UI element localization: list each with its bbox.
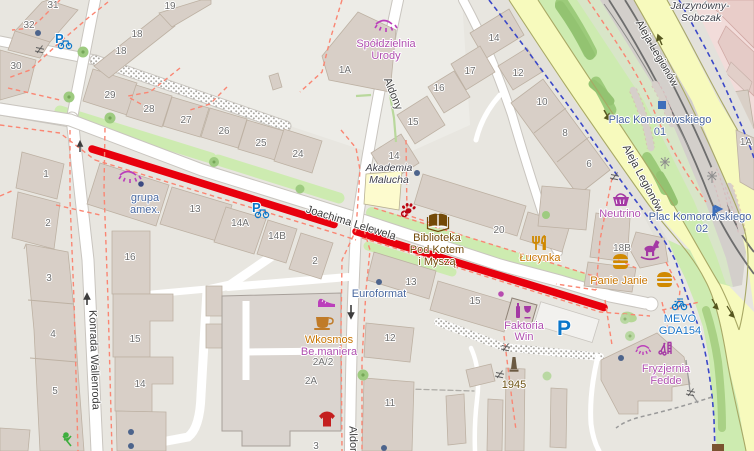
svg-text:Pod Kotem: Pod Kotem	[410, 244, 464, 256]
svg-text:02: 02	[696, 223, 708, 235]
svg-text:5: 5	[52, 386, 58, 397]
svg-text:20: 20	[493, 225, 505, 236]
svg-text:27: 27	[180, 115, 192, 126]
svg-text:Be.maniera: Be.maniera	[301, 346, 358, 358]
svg-text:Neutrino: Neutrino	[599, 208, 641, 220]
svg-text:2A/2: 2A/2	[313, 357, 334, 368]
svg-text:Aldony: Aldony	[346, 426, 359, 451]
svg-text:P: P	[557, 317, 571, 340]
svg-text:Malucha: Malucha	[369, 174, 409, 186]
svg-text:1A: 1A	[740, 137, 753, 148]
svg-text:19: 19	[164, 1, 176, 12]
svg-text:13: 13	[189, 204, 201, 215]
svg-text:Euroformat: Euroformat	[352, 288, 406, 300]
svg-text:2A: 2A	[305, 376, 318, 387]
svg-text:MEVO: MEVO	[664, 313, 697, 325]
svg-text:11: 11	[385, 398, 396, 409]
svg-text:GDA154: GDA154	[659, 325, 701, 337]
svg-text:Fedde: Fedde	[650, 375, 681, 387]
svg-text:1945: 1945	[502, 379, 526, 391]
svg-text:2: 2	[45, 218, 51, 229]
svg-text:3: 3	[46, 273, 52, 284]
svg-text:1A: 1A	[339, 65, 352, 76]
svg-text:i Myszą: i Myszą	[418, 256, 456, 268]
svg-text:Wkosmos: Wkosmos	[305, 334, 354, 346]
svg-text:13: 13	[405, 277, 417, 288]
svg-text:29: 29	[104, 90, 116, 101]
svg-text:15: 15	[407, 117, 419, 128]
svg-text:26: 26	[218, 126, 230, 137]
svg-text:Plac Komorowskiego: Plac Komorowskiego	[609, 114, 712, 126]
svg-text:30: 30	[10, 61, 22, 72]
svg-text:17: 17	[464, 66, 476, 77]
svg-text:Panie Janie: Panie Janie	[590, 275, 648, 287]
svg-text:6: 6	[586, 159, 592, 170]
svg-text:18: 18	[115, 46, 127, 57]
svg-text:Urody: Urody	[371, 50, 401, 62]
svg-text:15: 15	[129, 334, 141, 345]
svg-text:Win: Win	[515, 331, 534, 343]
svg-text:10: 10	[536, 97, 548, 108]
svg-text:Spółdzielnia: Spółdzielnia	[356, 38, 416, 50]
svg-text:14A: 14A	[231, 218, 249, 229]
svg-text:Plac Komorowskiego: Plac Komorowskiego	[649, 211, 752, 223]
svg-text:3: 3	[313, 441, 319, 451]
svg-text:14B: 14B	[268, 231, 286, 242]
svg-text:14: 14	[388, 151, 400, 162]
svg-text:31: 31	[47, 0, 59, 11]
svg-text:24: 24	[292, 149, 304, 160]
svg-text:25: 25	[255, 138, 267, 149]
svg-text:Sobczak: Sobczak	[681, 12, 722, 24]
svg-text:Łucynka: Łucynka	[520, 252, 562, 264]
svg-text:grupa: grupa	[131, 192, 160, 204]
svg-text:12: 12	[512, 68, 524, 79]
svg-text:14: 14	[488, 33, 500, 44]
svg-text:amex.: amex.	[130, 204, 160, 216]
svg-text:15: 15	[469, 296, 481, 307]
svg-text:8: 8	[562, 128, 568, 139]
svg-text:12: 12	[384, 333, 396, 344]
svg-text:32: 32	[23, 20, 35, 31]
svg-text:Fryzjernia: Fryzjernia	[642, 363, 691, 375]
svg-text:Jarzynówny-: Jarzynówny-	[670, 0, 730, 12]
svg-text:28: 28	[143, 104, 155, 115]
svg-text:14: 14	[134, 379, 146, 390]
svg-text:2: 2	[312, 256, 318, 267]
svg-text:Akademia: Akademia	[365, 162, 413, 174]
svg-text:1: 1	[43, 169, 49, 180]
svg-text:18B: 18B	[613, 243, 631, 254]
svg-text:16: 16	[124, 252, 136, 263]
svg-text:4: 4	[50, 329, 56, 340]
svg-text:Biblioteka: Biblioteka	[413, 232, 462, 244]
svg-text:16: 16	[433, 83, 445, 94]
svg-text:01: 01	[654, 126, 666, 138]
svg-text:18: 18	[131, 29, 143, 40]
